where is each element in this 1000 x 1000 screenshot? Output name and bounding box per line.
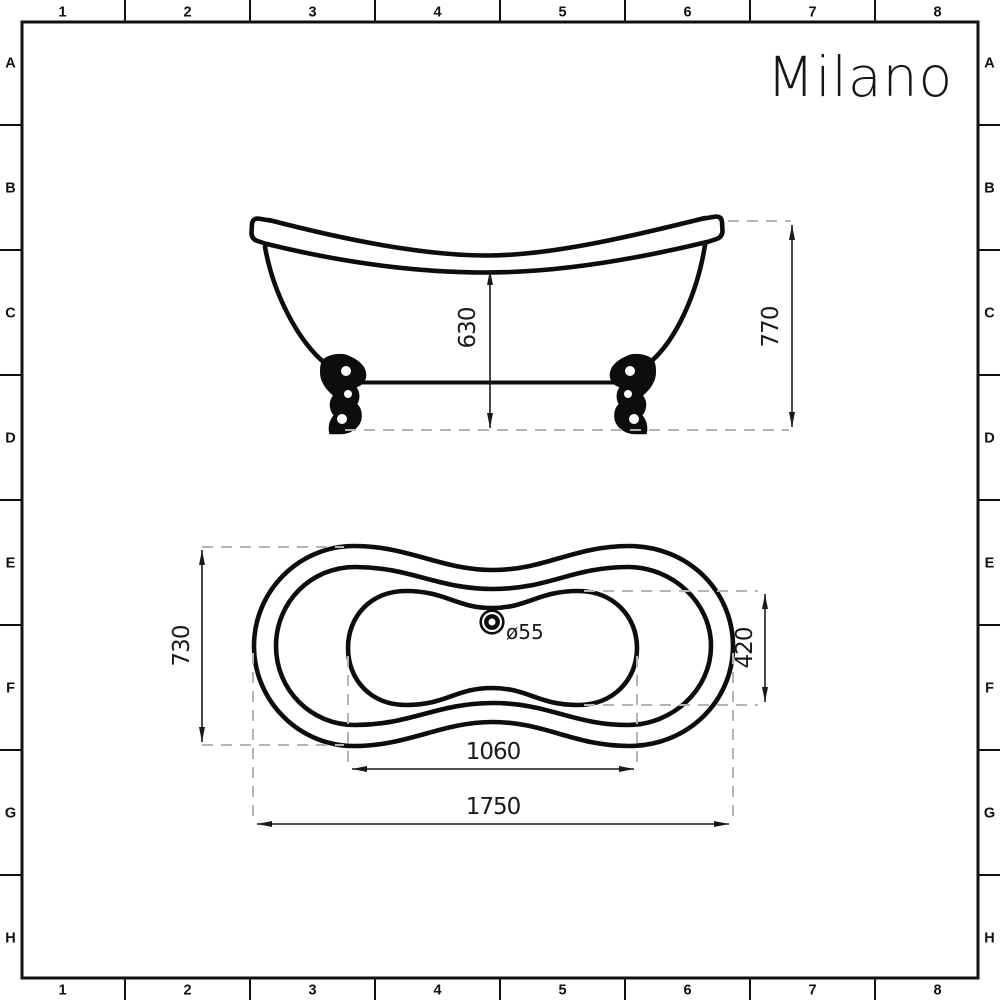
dimension-label-basin-length: 1060 [466,739,521,765]
grid-col-label: 2 [183,5,191,21]
tub-side-left [265,247,327,365]
grid-col-label: 6 [683,983,691,999]
grid-row-label: G [984,806,995,822]
grid-row-label: E [985,556,995,572]
grid-row-label: F [6,681,15,697]
grid-col-label: 7 [808,5,816,21]
grid-row-label: A [5,56,16,72]
sheet-frame: 1 2 3 4 5 6 7 8 1 2 3 4 5 6 7 8 A B C D … [0,0,1000,1000]
tub-end-cap-left [252,219,271,245]
grid-row-label: D [5,431,15,447]
claw-foot-right [610,355,655,434]
grid-col-label: 1 [58,983,66,999]
dimension-label-inner-height: 630 [455,307,481,348]
drawing-border [22,22,978,978]
dimension-label-overall-height: 770 [758,306,784,347]
grid-row-label: B [5,181,15,197]
technical-drawing: 1 2 3 4 5 6 7 8 1 2 3 4 5 6 7 8 A B C D … [0,0,1000,1000]
drain-diameter-label: ø55 [506,620,544,644]
grid-row-label: G [5,806,16,822]
tub-rim-outer [269,218,705,256]
grid-row-label: A [984,56,995,72]
tub-basin-outline [348,591,637,705]
grid-row-label: H [984,931,994,947]
grid-row-label: D [984,431,994,447]
tub-end-cap-right [704,217,723,243]
grid-col-label: 4 [433,983,441,999]
grid-row-label: C [5,306,16,322]
plan-view: ø55 730 420 1060 1750 [169,546,765,824]
side-view: 630 770 [252,217,793,434]
grid-col-label: 5 [558,983,566,999]
tub-side-right [648,245,705,364]
grid-col-label: 4 [433,5,441,21]
grid-col-label: 5 [558,5,566,21]
grid-row-label: F [985,681,994,697]
grid-col-label: 6 [683,5,691,21]
grid-col-label: 2 [183,983,191,999]
grid-col-label: 3 [308,983,316,999]
dimension-label-basin-width: 420 [732,627,758,668]
grid-row-label: H [5,931,15,947]
drain-outer-ring [481,611,504,634]
grid-row-label: E [6,556,16,572]
dimension-label-overall-length: 1750 [466,794,521,820]
grid-row-label: B [984,181,994,197]
grid-col-label: 1 [58,5,66,21]
grid-col-label: 8 [933,5,941,21]
grid-col-label: 8 [933,983,941,999]
grid-col-label: 3 [308,5,316,21]
grid-row-label: C [984,306,995,322]
claw-foot-left [321,355,366,434]
grid-col-label: 7 [808,983,816,999]
brand-logo: Milano [767,45,953,109]
dimension-label-overall-width: 730 [169,625,195,666]
